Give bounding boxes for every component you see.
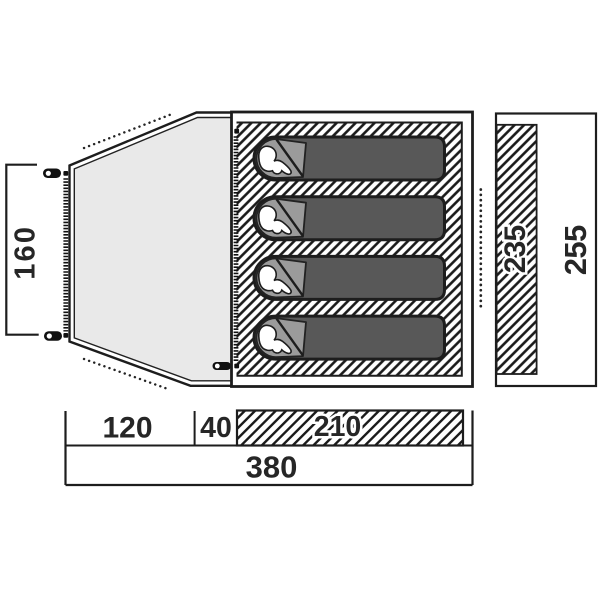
svg-text:160: 160 (10, 225, 42, 280)
svg-text:40: 40 (200, 412, 232, 444)
svg-text:235: 235 (499, 225, 532, 273)
svg-text:380: 380 (246, 450, 298, 485)
svg-text:255: 255 (558, 225, 593, 275)
svg-text:120: 120 (102, 412, 152, 445)
svg-text:210: 210 (314, 411, 362, 443)
